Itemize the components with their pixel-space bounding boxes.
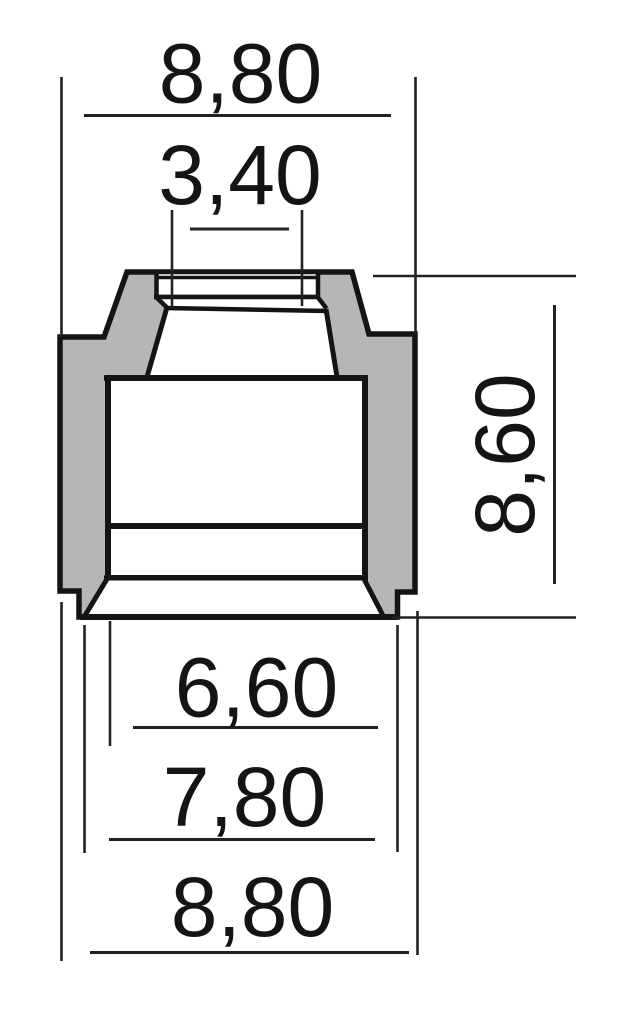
svg-text:6,60: 6,60 (175, 641, 339, 735)
svg-text:8,80: 8,80 (159, 27, 323, 121)
svg-text:8,60: 8,60 (458, 373, 552, 537)
svg-text:8,80: 8,80 (171, 860, 335, 954)
svg-text:7,80: 7,80 (163, 750, 327, 844)
svg-text:3,40: 3,40 (158, 128, 322, 222)
